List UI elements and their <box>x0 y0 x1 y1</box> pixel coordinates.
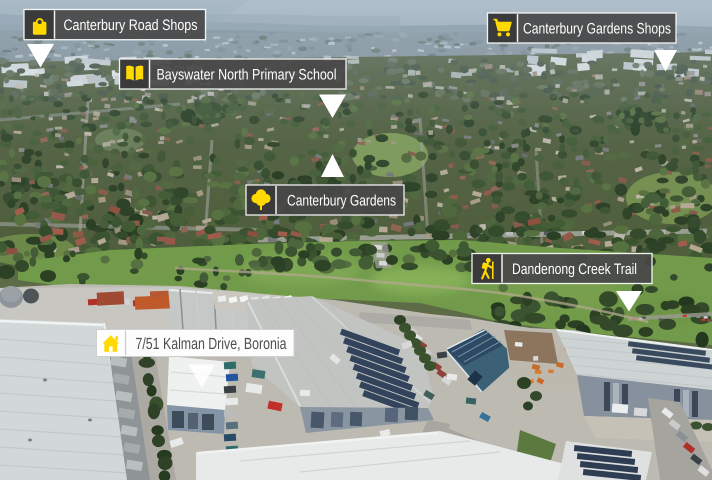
svg-text:Canterbury Road Shops: Canterbury Road Shops <box>64 17 198 34</box>
svg-text:7/51 Kalman Drive, Boronia: 7/51 Kalman Drive, Boronia <box>136 335 287 353</box>
svg-text:Canterbury Gardens Shops: Canterbury Gardens Shops <box>523 20 671 37</box>
svg-text:Bayswater North Primary School: Bayswater North Primary School <box>157 66 337 83</box>
svg-text:Canterbury Gardens: Canterbury Gardens <box>287 192 396 209</box>
svg-text:Dandenong Creek Trail: Dandenong Creek Trail <box>512 261 637 278</box>
